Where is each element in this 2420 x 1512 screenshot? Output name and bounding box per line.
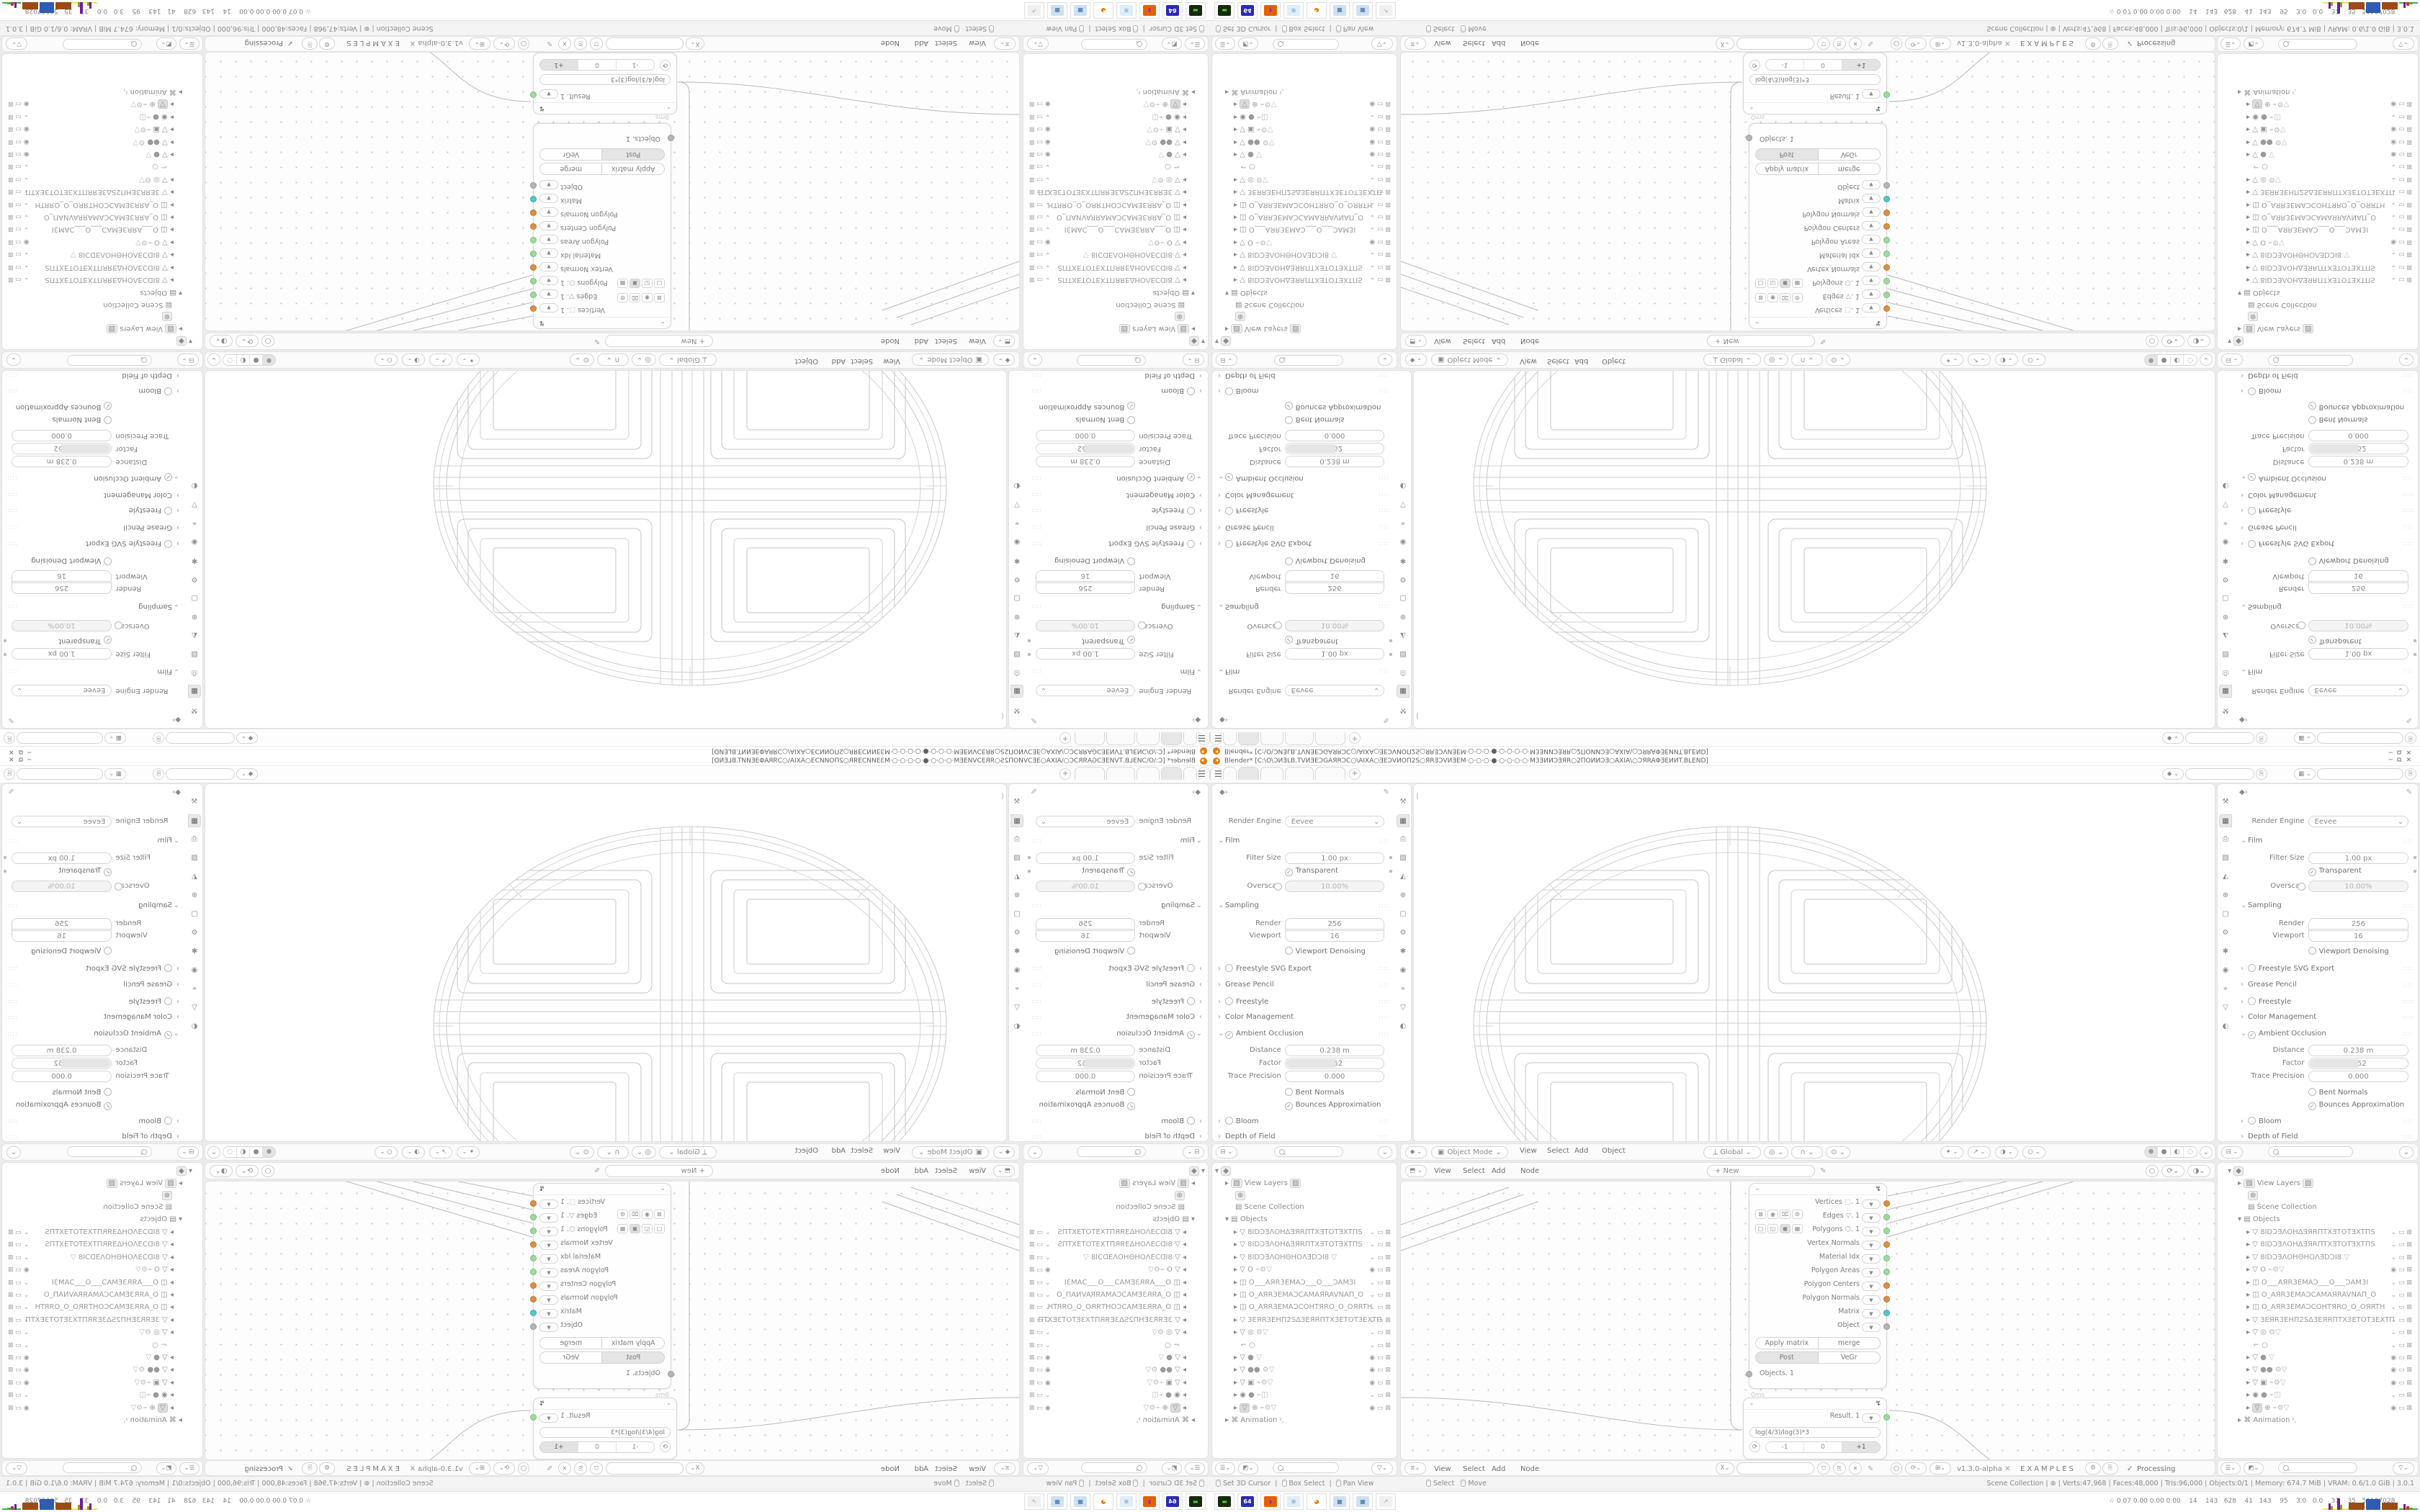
row-visibility-toggles[interactable]: ◉ ▭ ⊠ xyxy=(2390,150,2412,158)
outliner-object-row[interactable]: ▸ ◫ O___AЯR3EMAƆ___O___ƆAM3I⌄ ▭ ⊠ xyxy=(1212,222,1397,233)
outliner-object-row[interactable]: ▸ ◫ O_AЯR3EMAƆCOHTЯRO_O_OЯRTH⌄ ▭ ⊠ xyxy=(1212,197,1397,209)
outliner-scene-collection[interactable]: ▤ Scene Collection xyxy=(1023,297,1208,309)
props-tab-tool-icon[interactable]: ⚒ xyxy=(1010,796,1023,809)
outliner-object-row[interactable]: ▸ ▽ 8IDƆƎΛOHΔƎЯRПTXƎTOTƎXTПS⌄ ▭ ⊠ xyxy=(1023,272,1208,284)
props-tab-material-icon[interactable]: ◐ xyxy=(2219,479,2232,492)
scene-selector[interactable]: ◆ ⌄ ⎘ xyxy=(153,768,258,780)
shading-3[interactable]: ◌ xyxy=(223,1147,236,1157)
outliner-object-row[interactable]: ▸ ▽ ▣ ⌁⚙▽◉ ▭ ⊠ xyxy=(2218,1379,2418,1390)
result-node[interactable]: ⌄ ↯ Result. 1▼ log(4/3)/log(3)*3 ⟳ -10+1 xyxy=(1743,1398,1887,1459)
node-display-button[interactable]: ▦ xyxy=(617,1224,628,1233)
props-tab-view-layer-icon[interactable]: ▧ xyxy=(1010,647,1023,660)
tree-name-field[interactable] xyxy=(606,37,684,50)
section-header[interactable]: ⌄✓Ambient Occlusion xyxy=(2241,1030,2326,1039)
mode-dropdown[interactable]: ▣Object Mode⌄ xyxy=(912,354,989,366)
viewport-menu-select[interactable]: Select xyxy=(851,1147,873,1155)
field-factor[interactable]: 0.52 xyxy=(12,1058,112,1069)
window-controls[interactable]: ─⧉✕ xyxy=(4,757,31,764)
section-header[interactable]: ⌄Film xyxy=(1218,837,1240,845)
stepper--1[interactable]: -1 xyxy=(616,1442,654,1452)
viewlayer-icon[interactable]: ▦ ⌄ xyxy=(104,732,126,744)
props-tab-render-icon[interactable]: ▦ xyxy=(2219,685,2232,698)
overlay-control-icon[interactable]: ◑ ⌄ xyxy=(402,354,425,366)
row-visibility-toggles[interactable]: ⌄ ▭ ⊠ xyxy=(1029,201,1050,208)
row-visibility-toggles[interactable]: ⌄ ▭ ⊠ xyxy=(2391,213,2412,220)
tree-icon-0[interactable]: ⛉ xyxy=(590,37,603,50)
checkbox-bounces-approximation[interactable]: ✓Bounces Approximation xyxy=(1285,402,1381,411)
output-socket-dot[interactable] xyxy=(530,91,537,98)
loop-icon[interactable]: ⟳ xyxy=(1749,60,1760,71)
outliner-object-row[interactable]: ▸ ▽ 3EЯR3EHП2SΔ3EЯRПTX3ETOT3EXTП⌄ ▭ ⊠ xyxy=(2,184,202,196)
node-bottom-menu-add[interactable]: Add xyxy=(1492,1465,1505,1473)
outliner-object-row[interactable]: ▸ ▽ 8IDƆƎΛOHΘHOΛƎDƆI8 ▽⌄ ▭ ⊠ xyxy=(1023,1254,1208,1265)
props-tab-physics-icon[interactable]: ◉ xyxy=(188,535,201,548)
props-tab-object-icon[interactable]: ▢ xyxy=(2219,908,2232,921)
outliner-object-row[interactable]: ⌐ ○⌄ ▭ ⊠ xyxy=(2,159,202,171)
row-visibility-toggles[interactable]: ⌄ ▭ ⊠ xyxy=(8,1241,29,1248)
tree-icon-0[interactable]: ⛉ xyxy=(1817,37,1830,50)
socket-dot[interactable] xyxy=(1883,278,1890,284)
outliner-object-row[interactable]: ▸ ▽ ⊕ ⌁⚙▽◉ ▭ ⊠ xyxy=(1023,1404,1208,1416)
props-tab-data-icon[interactable]: ▽ xyxy=(2219,498,2232,510)
props-tab-world-icon[interactable]: ⊕ xyxy=(188,610,201,623)
pin-icon[interactable]: ✎ xyxy=(1820,1167,1826,1179)
outliner-view-layers[interactable]: ▸ ▧ View Layers ▧ xyxy=(2,1179,202,1190)
overlay-dropdown[interactable]: ◑⌄ xyxy=(210,1165,233,1177)
scissors-icon[interactable]: ✕ xyxy=(410,39,416,47)
snap-node-icon[interactable]: ⟳⌄ xyxy=(2161,335,2184,347)
editor-type-icon[interactable]: ⊟ ⌄ xyxy=(177,354,199,366)
window-title-bar[interactable]: Blender* [C:\O\ƆИƎLB.TVИƎEƆGAЯRƆC○\AIXA○… xyxy=(1210,756,2420,766)
checkbox-viewport-denoising[interactable]: Viewport Denoising xyxy=(2308,557,2389,565)
outliner-object-row[interactable]: ▸ ▽ 8IDƆƎΛOHΔƎЯRПTXƎTOTƎXTПS⌄ ▭ ⊠ xyxy=(2218,1228,2418,1240)
props-tab-output-icon[interactable]: ⎙ xyxy=(2219,666,2232,679)
field-filter-size[interactable]: 1.00 px xyxy=(12,648,112,660)
input-socket-dot[interactable] xyxy=(668,1371,674,1377)
viewport-3d[interactable]: ( xyxy=(1413,370,2215,729)
row-visibility-toggles[interactable]: ⌄ ▭ ⊠ xyxy=(2391,251,2412,258)
editor-type-icon[interactable]: ⊟ ⌄ xyxy=(1216,354,1237,366)
outliner-root-row[interactable]: ▾ ◆ xyxy=(2218,334,2418,346)
taskbar-floppy-64-icon[interactable]: 64 xyxy=(1162,1493,1183,1510)
section-header[interactable]: ›Bloom xyxy=(1218,387,1259,395)
row-visibility-toggles[interactable]: ⌄ ▭ ⊠ xyxy=(1370,1279,1391,1287)
scene-icon[interactable]: ◆ ⌄ xyxy=(236,732,258,744)
editor-type-icon[interactable]: ◆ ⌄ xyxy=(1405,1146,1427,1158)
scissors-icon[interactable]: ✕ xyxy=(2004,1465,2010,1473)
section-header[interactable]: ›Grease Pencil xyxy=(1146,523,1202,531)
node-header[interactable]: ⌄ ↯ xyxy=(534,1184,671,1195)
outliner-view-layers[interactable]: ▸ ▧ View Layers ▧ xyxy=(1212,1179,1397,1190)
outliner-animation-row[interactable]: ▸ ⌘ Animation ², xyxy=(2,1416,202,1428)
workspace-tab[interactable] xyxy=(1260,732,1283,745)
gear-icon[interactable]: ⚙ xyxy=(319,37,335,50)
shading-1[interactable]: ● xyxy=(249,1147,262,1157)
row-visibility-toggles[interactable]: ⌄ ▭ ⊠ xyxy=(2391,1392,2412,1399)
outliner-object-row[interactable]: ▸ ▽ ◎ ⚙▽⌄ ▭ ⊠ xyxy=(1023,1328,1208,1340)
outliner-search-input[interactable] xyxy=(67,355,152,366)
outliner-root-row[interactable]: ▾ ◆ xyxy=(1212,334,1397,346)
props-tab-particles-icon[interactable]: ✱ xyxy=(1010,945,1023,958)
field-render[interactable]: 256 xyxy=(1036,582,1136,594)
circle-toggle[interactable]: ○ xyxy=(518,1462,529,1475)
node-display-button[interactable]: ◱ xyxy=(1767,1224,1778,1233)
outliner-object-row[interactable]: ▸ ▽ ● ▽◉ ▭ ⊠ xyxy=(2,1354,202,1365)
props-tab-view-layer-icon[interactable]: ▧ xyxy=(2219,647,2232,660)
field-render-engine[interactable]: Eevee ⌄ xyxy=(1036,685,1136,696)
props-tab-physics-icon[interactable]: ◉ xyxy=(1397,964,1410,977)
outliner-object-row[interactable]: ▸ ▽ ▣ ⌁⚙▽◉ ▭ ⊠ xyxy=(2,1379,202,1390)
row-visibility-toggles[interactable]: ◉ ▭ ⊠ xyxy=(2390,1354,2412,1362)
outliner-object-row[interactable]: ▸ ▽ ⊕ ⌁⚙▽◉ ▭ ⊠ xyxy=(1023,96,1208,108)
node-menu-add[interactable]: Add xyxy=(1492,1167,1505,1175)
field-filter-size[interactable]: 1.00 px xyxy=(2308,648,2409,660)
row-visibility-toggles[interactable]: ⌄ ▭ ⊠ xyxy=(1029,1304,1050,1311)
node-header[interactable]: ⌄ ↯ xyxy=(534,102,676,114)
outliner-object-row[interactable]: ▸ ◫ O_AЯR3EMAƆCAMAЯRAVNAП_O⌄ ▭ ⊠ xyxy=(1212,210,1397,221)
taskbar-blender-icon[interactable]: ◕ xyxy=(1307,2,1327,19)
overlay-control-icon[interactable]: ✦ ⌄ xyxy=(1940,1146,1963,1158)
node-button-apply-matrix[interactable]: Apply matrix xyxy=(602,163,665,175)
overlay-circle-icon[interactable]: ○ xyxy=(2146,1165,2159,1177)
row-visibility-toggles[interactable]: ⌄ ▭ ⊠ xyxy=(1370,176,1391,183)
shading-3[interactable]: ◌ xyxy=(2184,355,2197,365)
outliner-objects[interactable]: ▾ ▤ Objects xyxy=(2,285,202,297)
checkbox-transparent[interactable]: ✓Transparent xyxy=(1082,867,1135,876)
props-tab-particles-icon[interactable]: ✱ xyxy=(2219,554,2232,567)
props-tab-modifiers-icon[interactable]: ⚙ xyxy=(1010,927,1023,940)
outliner-view-layers[interactable]: ▸ ▧ View Layers ▧ xyxy=(1023,322,1208,333)
display-mode-icon[interactable]: ☰⌄ xyxy=(179,1462,200,1475)
viewport-menu-object[interactable]: Object xyxy=(1602,1147,1626,1155)
row-visibility-toggles[interactable]: ⌄ ▭ ⊠ xyxy=(2391,276,2412,283)
tree-name-field[interactable] xyxy=(1736,37,1814,50)
field-overscan[interactable]: 10.00% xyxy=(12,620,112,631)
circle-toggle[interactable]: ○ xyxy=(1891,1462,1902,1475)
outliner-object-row[interactable]: ⌐ ○⌄ ▭ ⊠ xyxy=(1023,1341,1208,1353)
scissors-icon[interactable]: ✕ xyxy=(410,1465,416,1473)
window-controls[interactable]: ─⧉✕ xyxy=(4,748,31,755)
props-tab-world-icon[interactable]: ⊕ xyxy=(1010,889,1023,902)
field-trace-precision[interactable]: 0.000 xyxy=(2308,1071,2409,1082)
row-visibility-toggles[interactable]: ⌄ ▭ ⊠ xyxy=(8,213,29,220)
stepper-+1[interactable]: +1 xyxy=(540,1442,578,1452)
outliner-object-row[interactable]: ▸ ▽ O ⌁⚙▽◉ ▭ ⊠ xyxy=(2218,1266,2418,1277)
stepper-buttons[interactable]: -10+1 xyxy=(1765,1441,1881,1453)
node-display-button[interactable]: □ xyxy=(1755,1224,1766,1233)
section-header[interactable]: ›Bloom xyxy=(138,387,179,395)
outliner-object-row[interactable]: ▸ ▽ 8IDƆƎΛOHΔƎЯRПTXƎTOTƎXTПS⌄ ▭ ⊠ xyxy=(1212,272,1397,284)
row-visibility-toggles[interactable]: ⌄ ▭ ⊠ xyxy=(8,201,29,208)
outliner-root-row[interactable]: ▾ ◆ xyxy=(1212,1166,1397,1178)
section-header[interactable]: ›Depth of Field xyxy=(1218,1133,1276,1140)
row-visibility-toggles[interactable]: ⌄ ▭ ⊠ xyxy=(8,1392,29,1399)
node-header[interactable]: ⌄ ↯ xyxy=(534,317,671,328)
field-factor[interactable]: 0.52 xyxy=(1036,1058,1136,1069)
row-visibility-toggles[interactable]: ⌄ ▭ ⊠ xyxy=(1370,201,1391,208)
row-visibility-toggles[interactable]: ◉ ▭ ⊠ xyxy=(1029,100,1051,107)
props-tab-scene-icon[interactable]: ◭ xyxy=(1010,629,1023,642)
outliner-search-input[interactable] xyxy=(1274,1146,1343,1157)
snap-node-icon[interactable]: ⟳⌄ xyxy=(2161,1165,2184,1177)
viewport-menu-object[interactable]: Object xyxy=(794,357,818,365)
section-header[interactable]: ›Freestyle SVG Export xyxy=(1108,964,1202,973)
overscan-toggle[interactable] xyxy=(1274,883,1282,891)
props-tab-tool-icon[interactable]: ⚒ xyxy=(1397,703,1410,716)
outliner-object-row[interactable]: ▸ ◫ O___AЯR3EMAƆ___O___ƆAM3I⌄ ▭ ⊠ xyxy=(1023,222,1208,233)
checkbox-viewport-denoising[interactable]: Viewport Denoising xyxy=(1054,947,1135,955)
props-tab-render-icon[interactable]: ▦ xyxy=(1397,814,1410,827)
tree-icon-1[interactable]: ⎘ xyxy=(1833,37,1846,50)
scene-icon[interactable]: ◆ ⌄ xyxy=(236,768,258,780)
viewlayer-copy-icon[interactable]: ⎘ xyxy=(2405,768,2416,780)
scene-icon[interactable]: ◆ ⌄ xyxy=(2162,732,2184,744)
outliner-objects[interactable]: ▾ ▤ Objects xyxy=(2218,1215,2418,1227)
props-tab-render-icon[interactable]: ▦ xyxy=(188,685,201,698)
socket-dot[interactable] xyxy=(1883,196,1890,202)
overscan-toggle[interactable] xyxy=(2298,621,2305,629)
row-visibility-toggles[interactable]: ⌄ ▭ ⊠ xyxy=(1029,213,1050,220)
overlay-dropdown[interactable]: ◑⌄ xyxy=(210,335,233,347)
node-button-apply-matrix[interactable]: Apply matrix xyxy=(602,1337,665,1349)
node-display-button[interactable]: ◼ xyxy=(1780,279,1791,288)
workspace-tab[interactable] xyxy=(1183,732,1197,745)
overlay-dropdown[interactable]: ◑⌄ xyxy=(2187,335,2210,347)
taskbar-notepad-icon[interactable]: ≡ xyxy=(1283,1493,1304,1510)
new-workspace-button[interactable]: + xyxy=(1349,768,1361,780)
field-distance[interactable]: 0.238 m xyxy=(2308,1045,2409,1056)
tree-icon-2[interactable]: ✕ xyxy=(558,1462,571,1475)
section-header[interactable]: ›Color Management xyxy=(104,1013,179,1021)
node-header[interactable]: ⌄ ↯ xyxy=(1744,102,1886,114)
overlay-control-icon[interactable]: ↗ ⌄ xyxy=(1968,1146,1991,1158)
props-tab-material-icon[interactable]: ◐ xyxy=(1397,479,1410,492)
overlay-control-icon[interactable]: ○ ⌄ xyxy=(375,1146,398,1158)
new-workspace-button[interactable]: + xyxy=(1349,732,1361,744)
socket-dot[interactable] xyxy=(530,196,537,202)
outliner-object-row[interactable]: ▸ ◫ O_AЯR3EMAƆCAMAЯRAVNAП_O⌄ ▭ ⊠ xyxy=(2,1291,202,1302)
checkbox-bent-normals[interactable]: Bent Normals xyxy=(2308,415,2368,424)
snap-toggle[interactable]: ∩ ⌄ xyxy=(597,1146,629,1158)
props-tab-constraints-icon[interactable]: ⌖ xyxy=(1397,983,1410,996)
props-tab-material-icon[interactable]: ◐ xyxy=(188,479,201,492)
circle-toggle[interactable]: ○ xyxy=(518,37,529,50)
result-node[interactable]: ⌄ ↯ Result. 1▼ log(4/3)/log(3)*3 ⟳ -10+1 xyxy=(1743,53,1887,114)
proportional-edit-toggle[interactable]: ⊙ ⌄ xyxy=(570,354,594,366)
socket-dot[interactable] xyxy=(530,278,537,284)
workspace-tab[interactable] xyxy=(1223,732,1237,745)
outliner-object-row[interactable]: ▸ ◉ ● ⌁◫⌄ ▭ ⊠ xyxy=(2218,109,2418,121)
props-tab-material-icon[interactable]: ◐ xyxy=(188,1020,201,1033)
node-bottom-menu-select[interactable]: Select xyxy=(935,39,957,47)
socket-dot[interactable] xyxy=(1883,305,1890,312)
field-viewport[interactable]: 16 xyxy=(1285,570,1385,582)
outliner-object-row[interactable]: ▸ ◉ ● ⌁◫⌄ ▭ ⊠ xyxy=(1212,109,1397,121)
socket-dot[interactable] xyxy=(1883,264,1890,271)
props-tab-tool-icon[interactable]: ⚒ xyxy=(188,796,201,809)
section-header[interactable]: ⌄Sampling xyxy=(1218,603,1259,611)
field-trace-precision[interactable]: 0.000 xyxy=(1285,1071,1385,1082)
orientation-dropdown[interactable]: ⟂ Global ⌄ xyxy=(659,354,717,366)
snap-toggle[interactable]: ∩ ⌄ xyxy=(597,354,629,366)
input-socket-dot[interactable] xyxy=(668,135,674,141)
snap-node-icon[interactable]: ⟳⌄ xyxy=(236,1165,259,1177)
tree-tab-name[interactable]: EXAMPLES xyxy=(344,39,400,47)
row-visibility-toggles[interactable]: ⌄ ▭ ⊠ xyxy=(8,1229,29,1236)
pin-icon[interactable]: ✎ xyxy=(1820,333,1826,345)
section-header[interactable]: ›Bloom xyxy=(1218,1117,1259,1125)
props-tab-scene-icon[interactable]: ◭ xyxy=(2219,629,2232,642)
section-header[interactable]: ⌄Sampling xyxy=(2241,603,2282,611)
row-visibility-toggles[interactable]: ◉ ▭ ⊠ xyxy=(2390,1266,2412,1274)
overlay-control-icon[interactable]: ○ ⌄ xyxy=(2022,1146,2045,1158)
window-title-bar[interactable]: Blender* [C:\O\ƆИƎLB.TVИƎEƆGAЯRƆC○\AIXA○… xyxy=(0,756,1210,766)
props-tab-tool-icon[interactable]: ⚒ xyxy=(1397,796,1410,809)
row-visibility-toggles[interactable]: ◉ ▭ ⊠ xyxy=(8,1405,30,1412)
outliner-object-row[interactable]: ▸ ▽ ●● ⚙▽◉ ▭ ⊠ xyxy=(2,135,202,146)
row-visibility-toggles[interactable]: ⌄ ▭ ⊠ xyxy=(1029,163,1050,170)
overlay-control-icon[interactable]: ○ ⌄ xyxy=(2022,354,2045,366)
workspace-tab[interactable] xyxy=(1075,767,1105,780)
outliner-world[interactable]: ⊕ xyxy=(2,310,202,321)
node-button-vegr[interactable]: VeGr xyxy=(1819,1351,1881,1364)
outliner-object-row[interactable]: ▸ ◉ ● ⌁◫⌄ ▭ ⊠ xyxy=(1023,1391,1208,1403)
field-render-engine[interactable]: Eevee ⌄ xyxy=(2308,685,2409,696)
outliner-object-row[interactable]: ▸ ◫ O_AЯR3EMAƆCOHTЯRO_O_OЯRTH⌄ ▭ ⊠ xyxy=(2218,1303,2418,1315)
row-visibility-toggles[interactable]: ◉ ▭ ⊠ xyxy=(1369,150,1391,158)
scene-selector[interactable]: ◆ ⌄ ⎘ xyxy=(2162,732,2267,744)
workspace-tab[interactable] xyxy=(1161,732,1182,745)
field-overscan[interactable]: 10.00% xyxy=(12,881,112,892)
node-bottom-menu-node[interactable]: Node xyxy=(881,1465,900,1473)
outliner-search-input[interactable] xyxy=(1081,1462,1147,1473)
workspace-tab[interactable] xyxy=(1075,732,1105,745)
outliner-object-row[interactable]: ▸ ▽ 3EЯR3EHП2SΔ3EЯRПTX3ETOT3EXTП⌄ ▭ ⊠ xyxy=(1212,1316,1397,1328)
section-header[interactable]: ›Color Management xyxy=(1218,1013,1294,1021)
section-header[interactable]: ›Freestyle xyxy=(1152,506,1202,515)
props-tab-render-icon[interactable]: ▦ xyxy=(2219,814,2232,827)
snap-toggle[interactable]: ∩ ⌄ xyxy=(1791,354,1823,366)
node-header[interactable]: ⌄ ↯ xyxy=(1749,1184,1886,1195)
outliner-root-row[interactable]: ▾ ◆ xyxy=(1023,334,1208,346)
editor-type-icon[interactable]: ⧖⌄ xyxy=(994,1462,1016,1475)
field-factor[interactable]: 0.52 xyxy=(2308,443,2409,454)
shading-3[interactable]: ◌ xyxy=(223,355,236,365)
outliner-search-input[interactable] xyxy=(1081,39,1147,50)
taskbar-blender-icon[interactable]: ◕ xyxy=(1093,2,1113,19)
tree-type-icon[interactable]: Χ⌄ xyxy=(1716,37,1734,50)
row-visibility-toggles[interactable]: ⌄ ▭ ⊠ xyxy=(1029,1292,1050,1299)
field-factor[interactable]: 0.52 xyxy=(1036,443,1136,454)
field-viewport[interactable]: 16 xyxy=(12,930,112,942)
field-filter-size[interactable]: 1.00 px xyxy=(1285,648,1385,660)
shading-mode-switch[interactable]: ⊕●◐◌ xyxy=(2144,354,2197,366)
outliner-object-row[interactable]: ▸ ◫ O_AЯR3EMAƆCAMAЯRAVNAП_O⌄ ▭ ⊠ xyxy=(2218,1291,2418,1302)
funnel-filter-icon[interactable]: ▽⌄ xyxy=(6,1462,27,1475)
props-tab-output-icon[interactable]: ⎙ xyxy=(1397,666,1410,679)
stepper-0[interactable]: 0 xyxy=(1804,1442,1842,1452)
pivot-dropdown[interactable]: ◎ ⌄ xyxy=(1764,1146,1788,1158)
outliner-scene-collection[interactable]: ▤ Scene Collection xyxy=(1212,1203,1397,1215)
stepper-0[interactable]: 0 xyxy=(578,60,616,70)
viewlayer-copy-icon[interactable]: ⎘ xyxy=(4,768,15,780)
outliner-root-row[interactable]: ▾ ◆ xyxy=(2218,1166,2418,1178)
props-tab-particles-icon[interactable]: ✱ xyxy=(188,945,201,958)
workspace-tab[interactable] xyxy=(1315,732,1345,745)
row-visibility-toggles[interactable]: ◉ ▭ ⊠ xyxy=(8,138,30,145)
props-tab-constraints-icon[interactable]: ⌖ xyxy=(1397,516,1410,529)
toolbar-collapse-icon[interactable]: ( xyxy=(1001,791,1004,801)
grid-dropdown[interactable]: ⊞⌄ xyxy=(1930,1462,1951,1475)
result-node[interactable]: ⌄ ↯ Result. 1▼ log(4/3)/log(3)*3 ⟳ -10+1 xyxy=(533,53,677,114)
props-tab-output-icon[interactable]: ⎙ xyxy=(2219,833,2232,846)
outliner-object-row[interactable]: ▸ ▽ O ⌁⚙▽◉ ▭ ⊠ xyxy=(2218,235,2418,246)
row-visibility-toggles[interactable]: ◉ ▭ ⊠ xyxy=(8,1380,30,1387)
outliner-object-row[interactable]: ▸ ◫ O___AЯR3EMAƆ___O___ƆAM3I⌄ ▭ ⊠ xyxy=(2,1279,202,1290)
filter-type-icon[interactable]: ◩⌄ xyxy=(1162,37,1182,50)
workspace-tab[interactable] xyxy=(1223,767,1237,780)
shading-1[interactable]: ● xyxy=(2158,355,2171,365)
section-header[interactable]: ›Freestyle SVG Export xyxy=(86,964,179,973)
field-trace-precision[interactable]: 0.000 xyxy=(2308,430,2409,441)
section-header[interactable]: ⌄Film xyxy=(1180,667,1202,675)
section-header[interactable]: ›Bloom xyxy=(138,1117,179,1125)
tree-type-icon[interactable]: Χ⌄ xyxy=(686,37,704,50)
outliner-scene-collection[interactable]: ▤ Scene Collection xyxy=(2,1203,202,1215)
outliner-object-row[interactable]: ▸ ▽ ▣ ⌁⚙▽◉ ▭ ⊠ xyxy=(1023,122,1208,133)
section-header[interactable]: ›Depth of Field xyxy=(122,1133,179,1140)
filter-dropdown-icon[interactable]: ⌄ xyxy=(1378,354,1392,366)
viewport-menu-select[interactable]: Select xyxy=(1547,1147,1569,1155)
props-tab-data-icon[interactable]: ▽ xyxy=(1397,1002,1410,1014)
section-header[interactable]: ›Depth of Field xyxy=(1144,372,1202,379)
node-mini-button[interactable]: ⚙ xyxy=(617,293,628,302)
editor-type-icon[interactable]: ⧖⌄ xyxy=(1404,1462,1426,1475)
viewlayer-selector[interactable]: ▦ ⌄ ⎘ xyxy=(4,732,126,744)
workspace-tab[interactable] xyxy=(1260,767,1283,780)
stepper--1[interactable]: -1 xyxy=(1766,60,1804,70)
grid-dropdown[interactable]: ⊞⌄ xyxy=(469,37,490,50)
section-header[interactable]: ›Grease Pencil xyxy=(2241,523,2297,531)
shading-0[interactable]: ⊕ xyxy=(262,1147,275,1157)
field-trace-precision[interactable]: 0.000 xyxy=(1036,430,1136,441)
outliner-object-row[interactable]: ▸ ▽ 8IDƆƎΛOHΘHOΛƎDƆI8 ▽⌄ ▭ ⊠ xyxy=(1212,247,1397,258)
node-mini-button[interactable]: ⊠ xyxy=(1755,1210,1766,1219)
shading-mode-switch[interactable]: ⊕●◐◌ xyxy=(223,354,276,366)
section-header[interactable]: ›Grease Pencil xyxy=(1218,523,1274,531)
circle-toggle[interactable]: ○ xyxy=(1891,37,1902,50)
outliner-object-row[interactable]: ▸ ▽ 8IDƆƎΛOHΔƎЯRПTXƎTOTƎXTПS⌄ ▭ ⊠ xyxy=(2,260,202,271)
props-tab-modifiers-icon[interactable]: ⚙ xyxy=(1397,927,1410,940)
row-visibility-toggles[interactable]: ⌄ ▭ ⊠ xyxy=(1029,1342,1050,1349)
input-socket-dot[interactable] xyxy=(1746,135,1752,141)
section-header[interactable]: ›Bloom xyxy=(1161,1117,1202,1125)
row-visibility-toggles[interactable]: ⌄ ▭ ⊠ xyxy=(2391,113,2412,120)
node-bottom-menu-view[interactable]: View xyxy=(969,1465,986,1473)
field-overscan[interactable]: 10.00% xyxy=(1036,620,1136,631)
outliner-object-row[interactable]: ⌐ ○⌄ ▭ ⊠ xyxy=(2,1341,202,1353)
node-header[interactable]: ⌄ ↯ xyxy=(1744,1398,1886,1410)
output-socket-dot[interactable] xyxy=(1883,91,1890,98)
field-render-engine[interactable]: Eevee ⌄ xyxy=(1036,816,1136,827)
scene-selector[interactable]: ◆ ⌄ ⎘ xyxy=(2162,768,2267,780)
socket-dot[interactable] xyxy=(530,1310,537,1316)
editor-type-icon[interactable]: ⬒ ⌄ xyxy=(993,1165,1015,1177)
row-visibility-toggles[interactable]: ⌄ ▭ ⊠ xyxy=(8,251,29,258)
scene-copy-icon[interactable]: ⎘ xyxy=(2256,768,2267,780)
shading-2[interactable]: ◐ xyxy=(2171,355,2184,365)
field-trace-precision[interactable]: 0.000 xyxy=(12,1071,112,1082)
